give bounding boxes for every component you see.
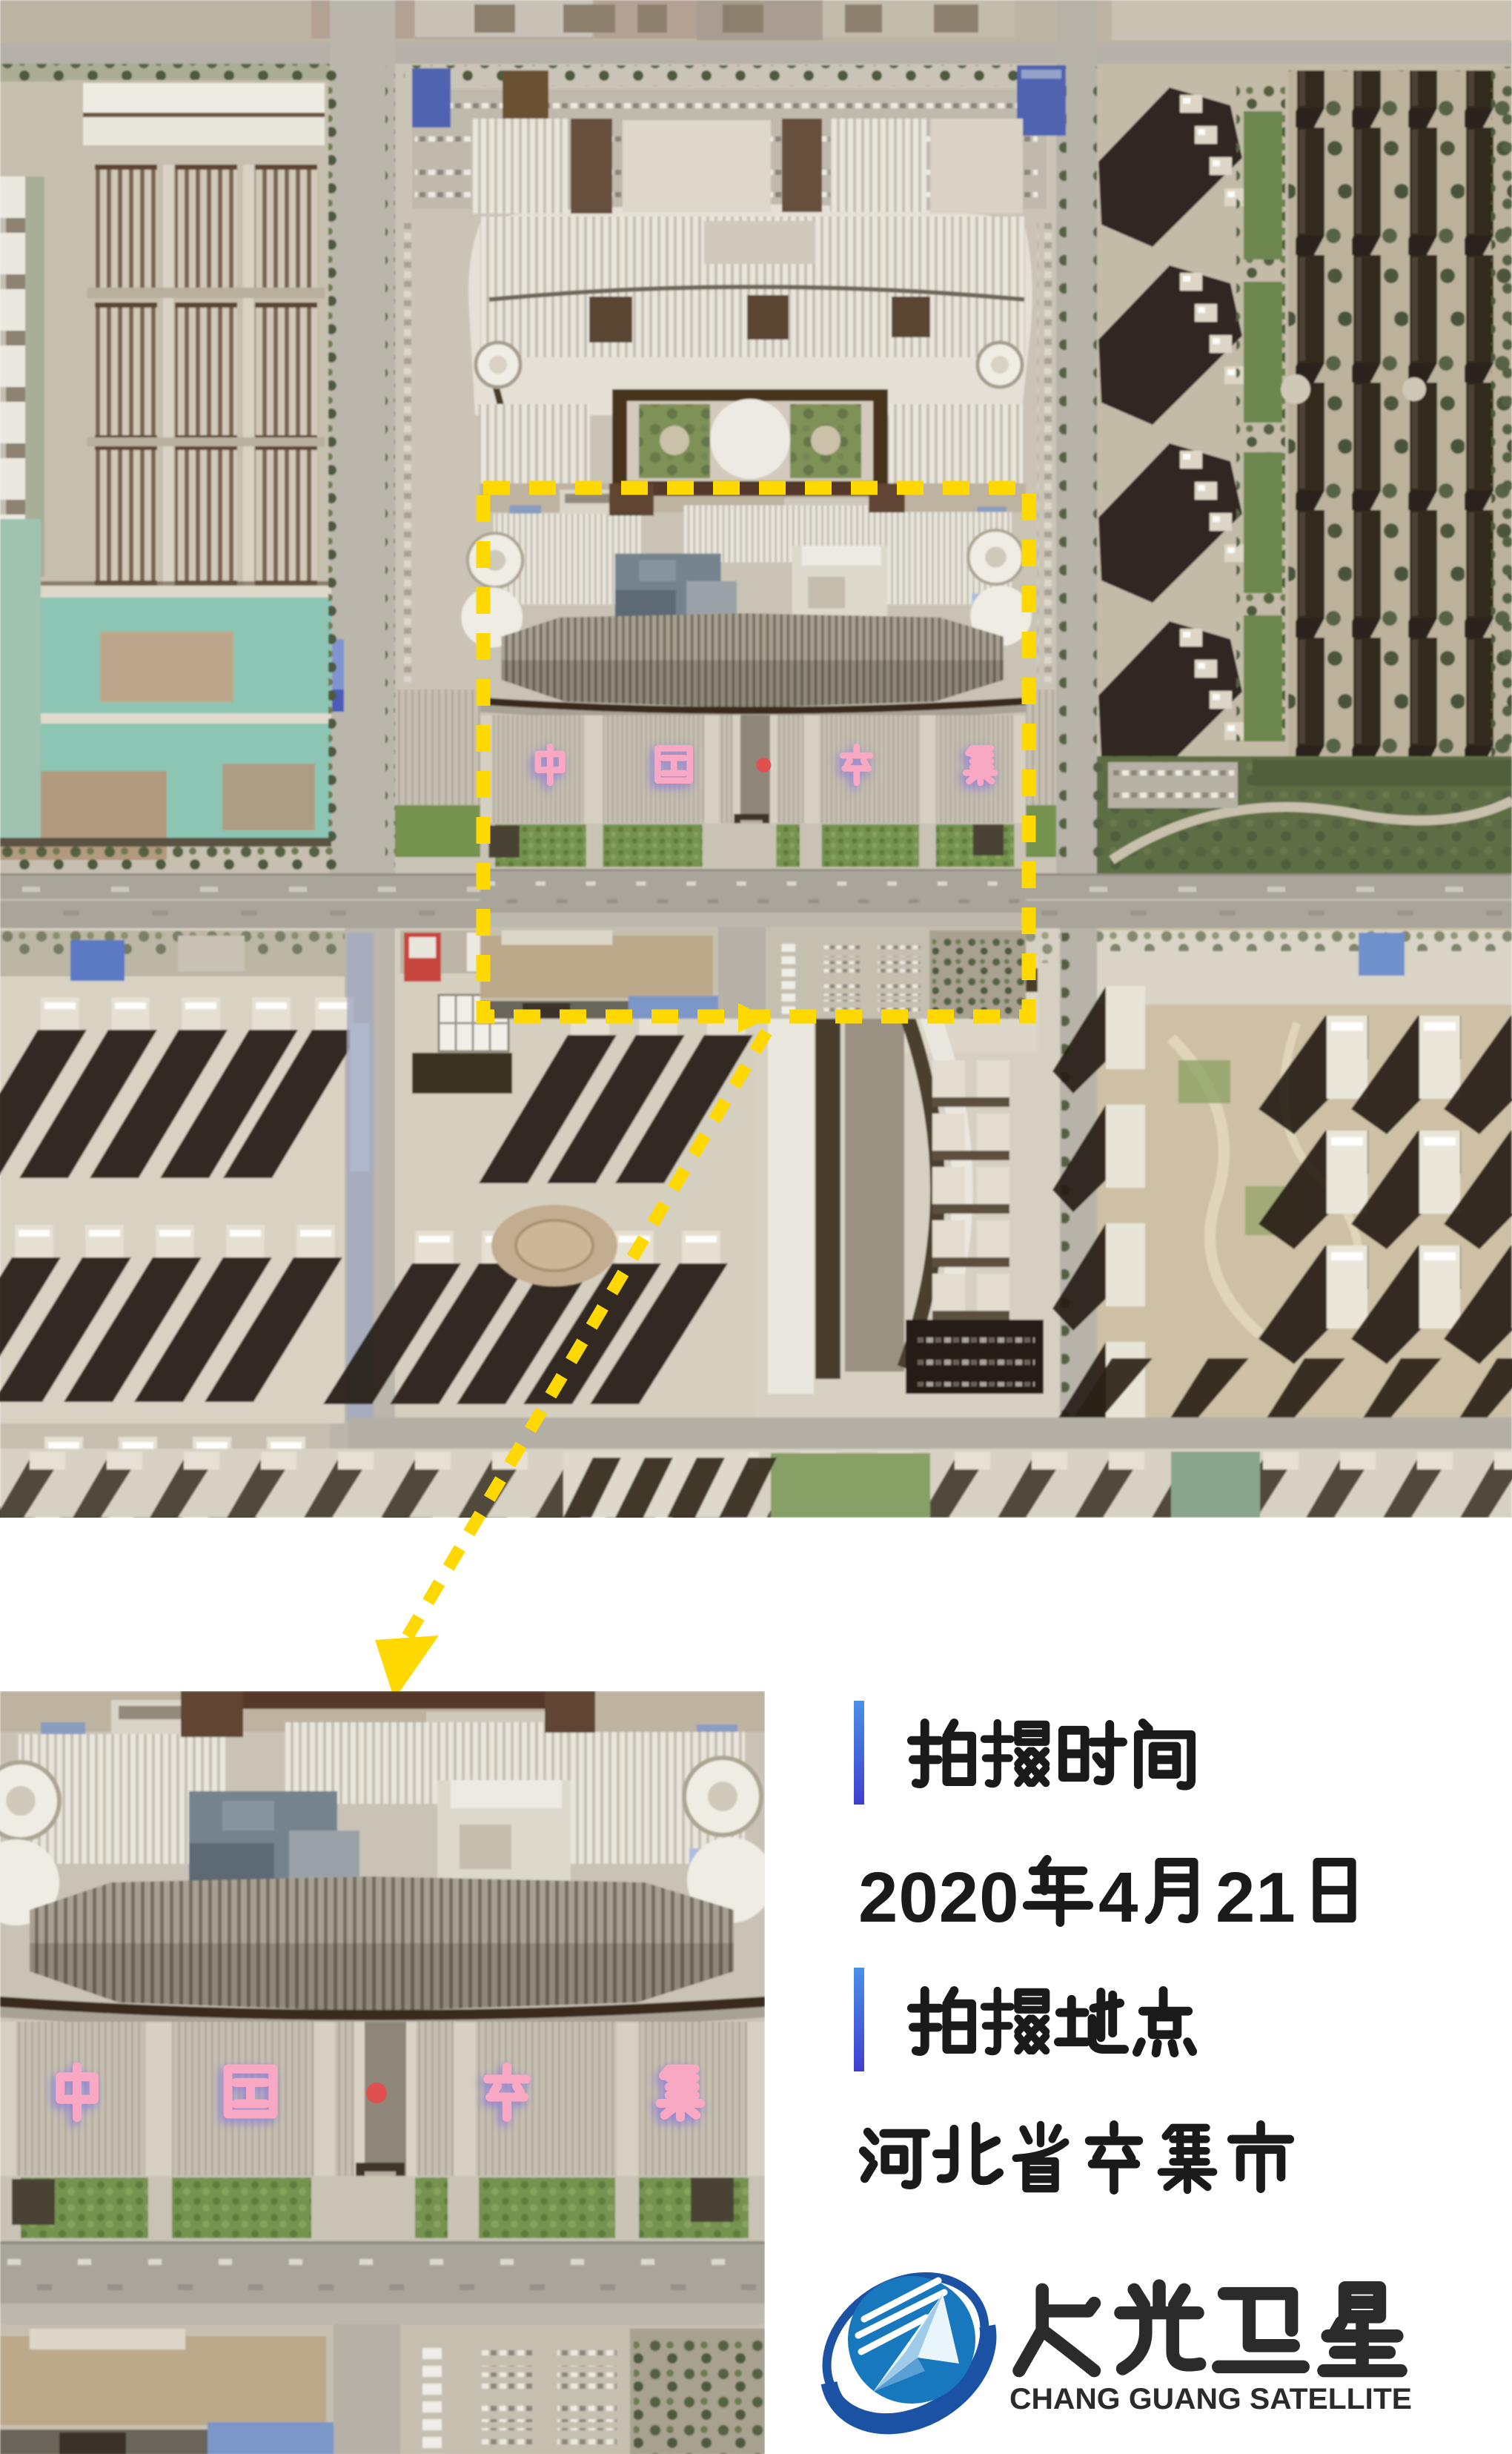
svg-text:4: 4 [1098,1858,1138,1937]
svg-text:21: 21 [1216,1858,1296,1937]
svg-text:2020: 2020 [858,1858,1020,1937]
svg-text:CHANG GUANG SATELLITE: CHANG GUANG SATELLITE [1009,2383,1412,2415]
